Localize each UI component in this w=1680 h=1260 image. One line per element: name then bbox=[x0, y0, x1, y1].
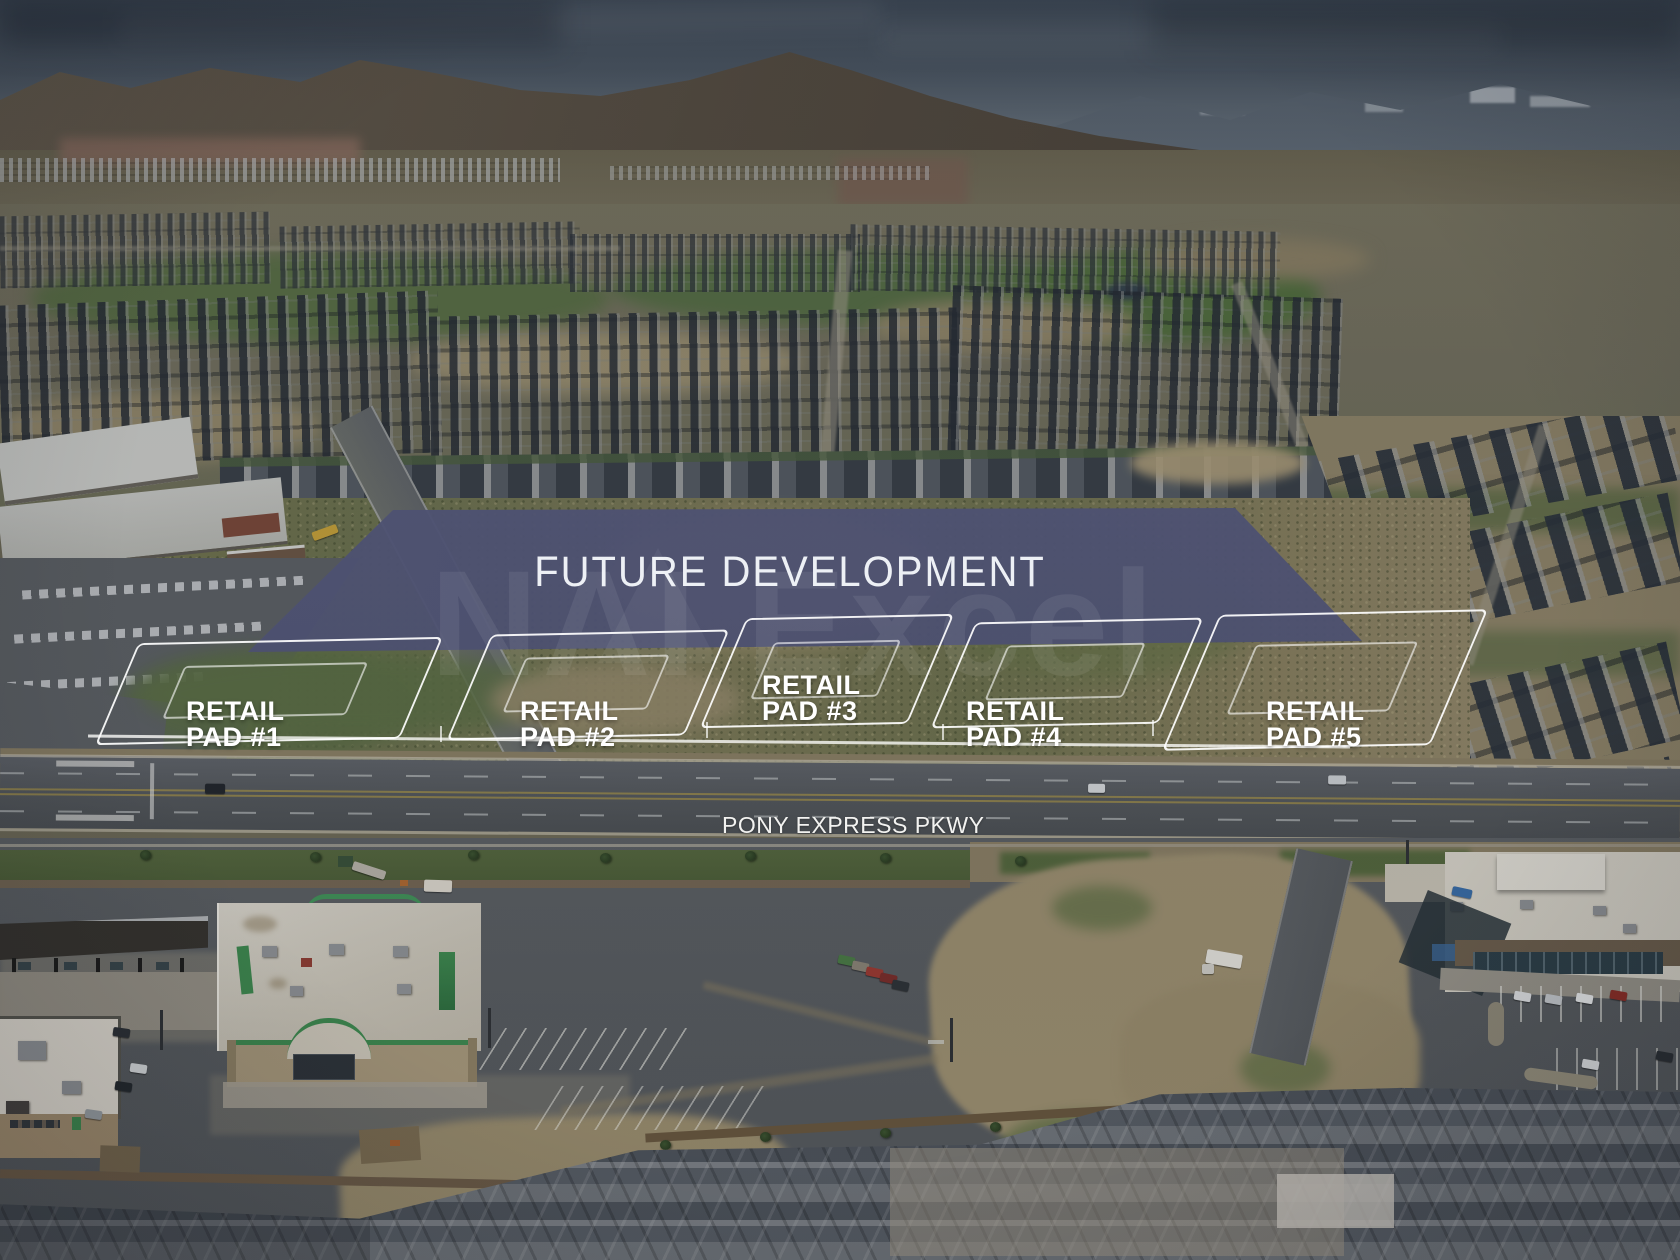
pad-1-label-line1: RETAIL bbox=[186, 698, 285, 724]
pad-5-label: RETAIL PAD #5 bbox=[1266, 698, 1365, 750]
pad-4-label-line2: PAD #4 bbox=[966, 724, 1065, 750]
pad-4-label: RETAIL PAD #4 bbox=[966, 698, 1065, 750]
pad-5-label-line2: PAD #5 bbox=[1266, 724, 1365, 750]
pad-3-label-line2: PAD #3 bbox=[762, 698, 861, 724]
pad-2-label: RETAIL PAD #2 bbox=[520, 698, 619, 750]
aerial-site-photo: NAI Excel RETAIL PAD #1 RETAIL PAD #2 RE… bbox=[0, 0, 1680, 1260]
pad-2-label-line1: RETAIL bbox=[520, 698, 619, 724]
future-development-label: FUTURE DEVELOPMENT bbox=[420, 549, 1160, 597]
pad-5-label-line1: RETAIL bbox=[1266, 698, 1365, 724]
pad-2-label-line2: PAD #2 bbox=[520, 724, 619, 750]
road-name-label: PONY EXPRESS PKWY bbox=[722, 812, 984, 839]
pad-3-label-line1: RETAIL bbox=[762, 672, 861, 698]
pad-4-label-line1: RETAIL bbox=[966, 698, 1065, 724]
pad-3-label: RETAIL PAD #3 bbox=[762, 672, 861, 724]
pad-4-parking-rows bbox=[984, 643, 1146, 701]
pad-connector bbox=[440, 726, 442, 742]
pad-1-label-line2: PAD #1 bbox=[186, 724, 285, 750]
pad-1-label: RETAIL PAD #1 bbox=[186, 698, 285, 750]
